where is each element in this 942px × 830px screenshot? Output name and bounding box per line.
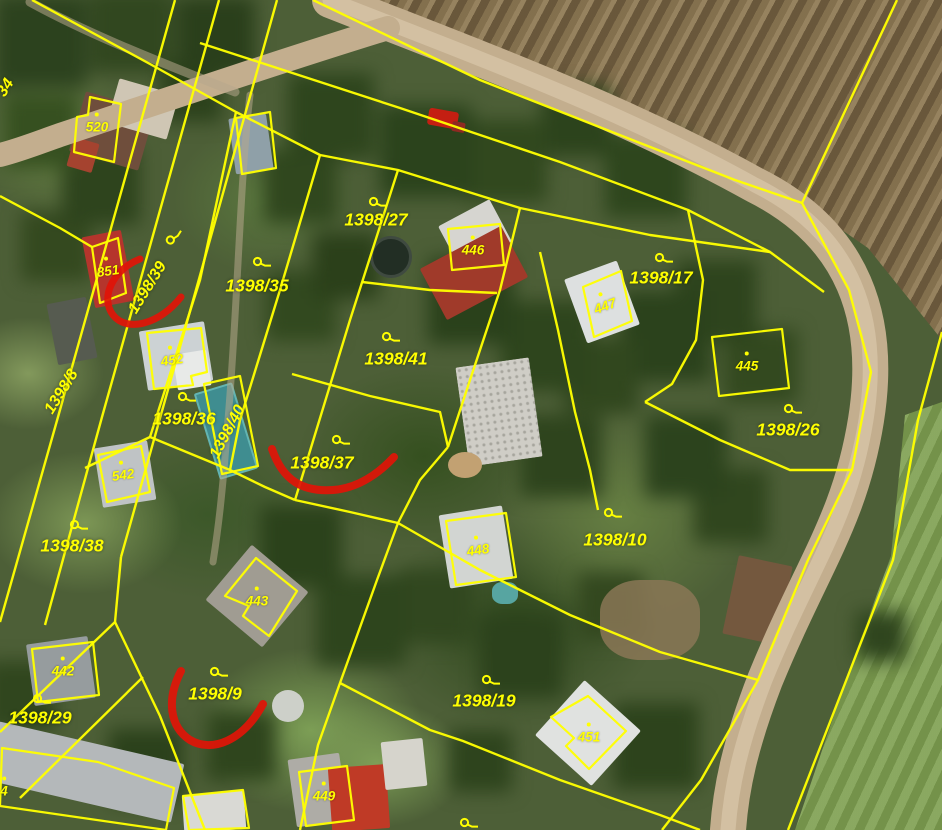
- building-roof: [94, 440, 157, 508]
- gravel-patch: [455, 357, 542, 466]
- building-roof: [228, 114, 273, 175]
- building-roof: [381, 738, 428, 790]
- cadastral-map-view[interactable]: 1398/271398/351398/171398/261398/411398/…: [0, 0, 942, 830]
- small-pool: [492, 582, 518, 604]
- bare-soil-patch: [600, 580, 700, 660]
- white-circle-object: [272, 690, 304, 722]
- building-roof: [439, 505, 514, 588]
- building-roof: [26, 636, 96, 706]
- round-pool: [370, 236, 412, 278]
- building-roof: [182, 791, 246, 830]
- building-roof: [172, 350, 211, 391]
- car-trailer: [451, 121, 466, 133]
- building-roof-red: [328, 764, 390, 830]
- sand-mound: [448, 452, 482, 478]
- tree-canopy-layer: [0, 0, 2, 2]
